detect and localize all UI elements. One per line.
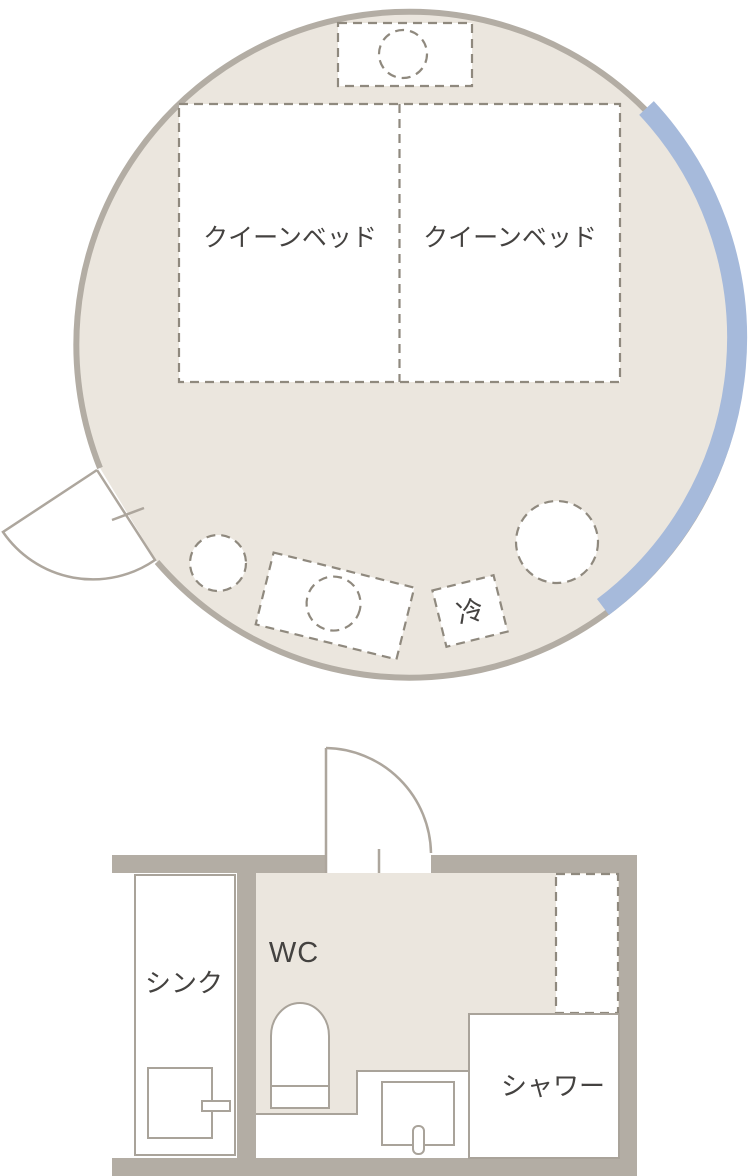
sink-cabinet-handle — [202, 1101, 230, 1111]
nightstand — [338, 23, 472, 86]
bathroom-partition-wall — [237, 873, 256, 1158]
towel-shelf — [556, 874, 618, 1013]
wc-floor-recess-left — [256, 1114, 357, 1158]
guest-room: クイーンベッド クイーンベッド 冷 — [3, 12, 742, 678]
sink-label: シンク — [145, 968, 223, 998]
bathroom-door — [326, 748, 431, 879]
bathroom-wall-bottom — [112, 1158, 637, 1176]
shower-label: シャワー — [501, 1071, 605, 1101]
chair-circle — [516, 501, 598, 583]
floor-plan-svg: クイーンベッド クイーンベッド 冷 — [0, 0, 750, 1176]
stool-circle — [190, 535, 246, 591]
queen-bed-right-label: クイーンベッド — [423, 224, 597, 252]
vanity-faucet — [413, 1126, 424, 1154]
toilet — [271, 1003, 329, 1108]
nightstand-outline — [338, 23, 472, 86]
shower-room: シャワー — [469, 1014, 619, 1158]
vanity-basin — [382, 1082, 454, 1154]
sink-room: シンク — [135, 875, 235, 1155]
queen-bed-left-label: クイーンベッド — [203, 224, 377, 252]
bathroom: シンク WC シャワー — [112, 748, 637, 1176]
wc-label: WC — [269, 937, 319, 969]
bathroom-wall-right — [619, 855, 637, 1176]
floor-plan: クイーンベッド クイーンベッド 冷 — [0, 0, 750, 1176]
queen-beds: クイーンベッド クイーンベッド — [179, 104, 620, 382]
toilet-bowl — [271, 1003, 329, 1108]
